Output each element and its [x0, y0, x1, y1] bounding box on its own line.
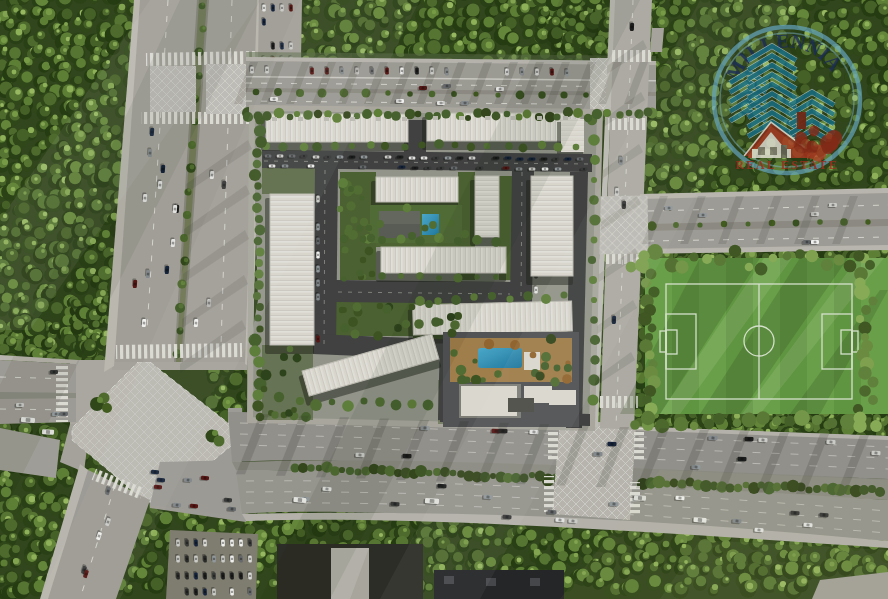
svg-text:REAL ESTATE: REAL ESTATE: [735, 158, 838, 172]
